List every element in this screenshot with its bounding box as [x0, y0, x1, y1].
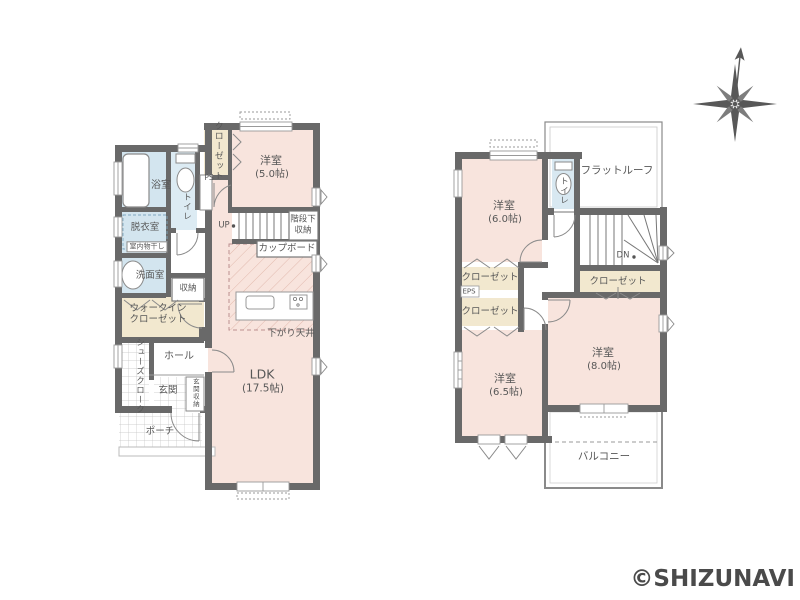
room-label-under-stair-1: 階段下 — [290, 216, 316, 225]
label-cupboard: カップボード — [258, 244, 315, 254]
room-label-washroom: 洗面室 — [136, 271, 165, 281]
room-label-dressing: 脱衣室 — [131, 223, 160, 233]
room-label-shoe-cloak: シューズクローク — [135, 338, 144, 414]
room-label-bedroom5-name: 洋室 — [260, 155, 282, 167]
room-label-bedroom8-name: 洋室 — [592, 347, 614, 359]
room-label-flat-roof: フラットルーフ — [581, 165, 654, 176]
label-eps: EPS — [462, 288, 475, 295]
room-label-bedroom5-size: (5.0帖) — [255, 170, 289, 181]
room-label-porch: ポーチ — [146, 427, 175, 437]
label-stairs-dn: DN — [617, 252, 630, 261]
room-label-wic-2: クローゼット — [129, 315, 186, 325]
room-label-ldk-name: LDK — [250, 367, 275, 380]
room-label-wic-1: ウォークイン — [129, 304, 186, 314]
room-label-bedroom65-name: 洋室 — [494, 373, 516, 385]
room-label-closet-b: クローゼット — [461, 307, 518, 317]
room-label-closet-1f: クローゼット — [212, 121, 221, 181]
room-label-toilet-2f: トイレ — [559, 177, 568, 206]
room-label-bedroom65-size: (6.5帖) — [489, 388, 523, 399]
room-label-bath: 浴室 — [151, 181, 171, 192]
room-label-bedroom8-size: (8.0帖) — [587, 362, 621, 373]
room-label-storage: 収納 — [179, 285, 196, 294]
room-label-closet-stairs: クローゼット — [589, 277, 646, 287]
watermark: ©SHIZUNAVI — [630, 566, 795, 592]
room-label-entrance: 玄関 — [158, 386, 177, 396]
label-indoor-drying: 室内物干し — [127, 241, 168, 252]
room-label-hall: ホール — [164, 352, 194, 363]
floorplan-page: クローゼット PS 洋室 (5.0帖) 浴室 トイレ 脱衣室 室内物干し 洗面室… — [0, 0, 800, 600]
room-label-closet-a: クローゼット — [461, 273, 518, 283]
room-label-bedroom6-name: 洋室 — [493, 200, 515, 212]
room-label-under-stair-2: 収納 — [294, 227, 311, 236]
compass-icon — [693, 47, 777, 142]
room-label-bedroom6-size: (6.0帖) — [488, 215, 522, 226]
room-label-balcony: バルコニー — [578, 451, 630, 462]
room-label-ldk-size: (17.5帖) — [242, 383, 284, 394]
room-label-toilet-1f: トイレ — [182, 193, 191, 222]
room-label-entrance-storage: 玄関収納 — [192, 378, 199, 408]
label-ps: PS — [204, 174, 213, 182]
floorplan-drawing — [0, 0, 800, 600]
label-stairs-up: UP — [218, 222, 229, 231]
label-lowered-ceiling: 下がり天井 — [267, 329, 315, 339]
